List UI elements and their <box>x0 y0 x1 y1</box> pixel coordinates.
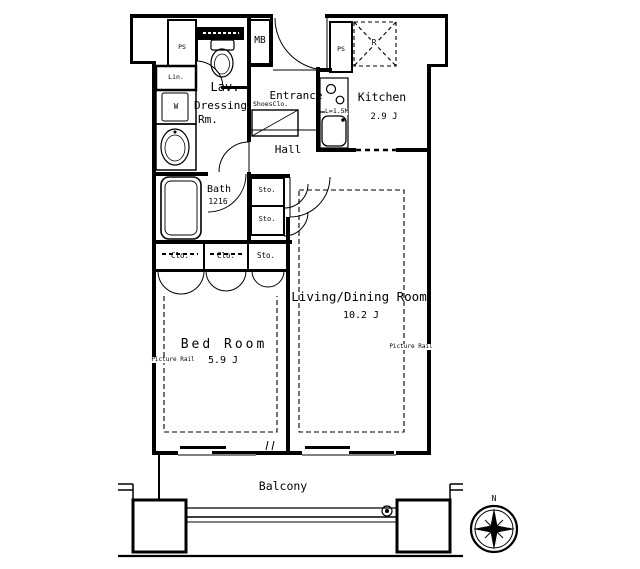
wash-basin <box>156 124 196 170</box>
bathtub <box>161 177 201 239</box>
label-bath: Bath <box>207 185 231 195</box>
label-living-dining: Living/Dining Room <box>291 291 426 304</box>
interior-walls <box>152 18 427 455</box>
label-balcony: Balcony <box>259 481 307 493</box>
label-storage-2: Sto. <box>259 216 276 223</box>
label-shoes-closet: ShoesClo. <box>253 101 288 108</box>
label-bath-size: 1216 <box>208 198 227 206</box>
floor-plan-drawing <box>0 0 640 569</box>
label-picture-rail-left: Picture Rail <box>151 357 194 363</box>
stove <box>327 85 344 104</box>
label-dressing-2: Rm. <box>198 114 218 125</box>
closet-doors <box>158 271 284 294</box>
label-picture-rail-right: Picture Rail <box>389 344 432 350</box>
label-closet-2: Clo. <box>217 252 235 260</box>
label-washer: W <box>174 103 179 111</box>
label-refrigerator: R <box>371 39 378 47</box>
label-bedroom: Bed Room <box>181 338 268 351</box>
label-kitchen-counter: L=1.5M <box>325 108 348 115</box>
label-lavatory: Lav. <box>211 81 240 93</box>
kitchen-sink <box>322 116 346 146</box>
label-closet-1: Clo. <box>171 252 189 260</box>
floor-plan: Lav. Dressing Rm. Bath 1216 Entrance Sho… <box>0 0 640 569</box>
label-living-dining-area: 10.2 J <box>343 311 379 321</box>
label-storage-1: Sto. <box>259 187 276 194</box>
compass-icon <box>471 506 517 552</box>
label-compass-north: N <box>492 495 497 503</box>
label-meter-box: MB <box>254 36 265 46</box>
label-kitchen-area: 2.9 J <box>370 113 397 122</box>
label-pipe-space-kitchen: PS <box>337 46 345 53</box>
label-hall: Hall <box>275 144 302 155</box>
label-dressing-1: Dressing <box>194 100 247 111</box>
toilet <box>211 40 234 77</box>
lav-shelf <box>198 27 244 40</box>
label-bedroom-area: 5.9 J <box>208 356 238 366</box>
shoes-cabinet <box>252 110 298 136</box>
label-storage-3: Sto. <box>257 252 275 260</box>
label-linen: Lin. <box>168 74 184 81</box>
label-kitchen: Kitchen <box>358 92 406 104</box>
label-pipe-space-left: PS <box>178 44 186 51</box>
